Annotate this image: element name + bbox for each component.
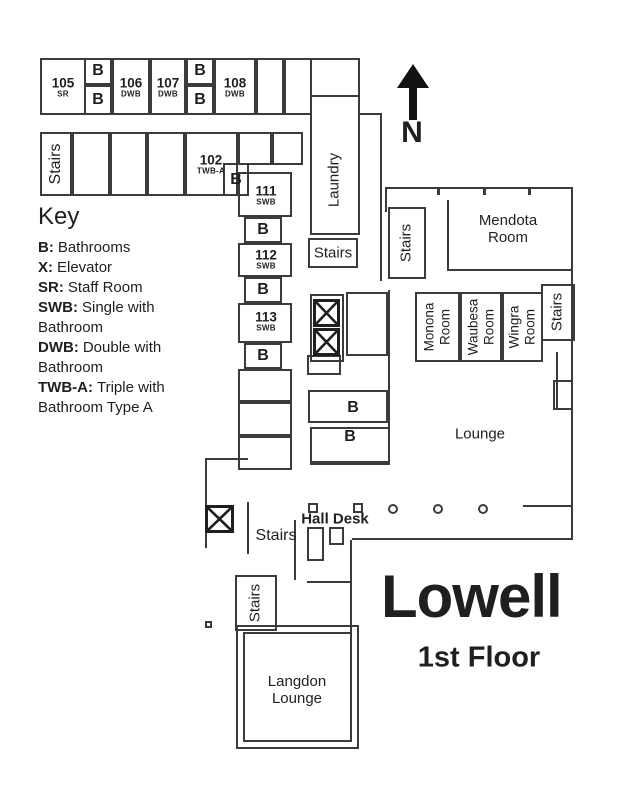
- waubesa-room-label: Waubesa Room: [466, 291, 497, 363]
- key-heading: Key: [38, 203, 79, 231]
- lounge-label: Lounge: [455, 426, 505, 443]
- north-arrow-icon: [396, 64, 430, 120]
- elevator-icon: [313, 299, 340, 327]
- floor-title: 1st Floor: [418, 642, 540, 675]
- wall: [556, 352, 558, 410]
- bathroom-label: B: [194, 62, 206, 80]
- room-outline: [346, 292, 388, 356]
- room-108-label: 108 DWB: [224, 77, 247, 100]
- room-113-label: 113 SWB: [255, 311, 277, 334]
- bathroom-label: B: [92, 91, 104, 109]
- wall: [523, 505, 573, 507]
- floor-plan: 105 SR 106 DWB 107 DWB 108 DWB 102 TWB-A…: [0, 0, 618, 800]
- wall: [360, 113, 380, 115]
- column-marker-square: [205, 621, 212, 628]
- room-outline: [272, 132, 303, 165]
- room-outline: [238, 132, 272, 165]
- wall: [447, 200, 449, 271]
- key-entry: SR:Staff Room: [38, 278, 198, 298]
- room-outline: [307, 355, 341, 375]
- bathroom-label: B: [230, 171, 242, 189]
- key-entry: B:Bathrooms: [38, 238, 198, 258]
- mendota-room-label: Mendota Room: [462, 212, 554, 246]
- room-111-label: 111 SWB: [255, 185, 276, 208]
- wall: [385, 187, 573, 189]
- wall: [358, 60, 360, 95]
- wall: [380, 113, 382, 281]
- wall: [447, 269, 573, 271]
- key-entry: TWB-A:Triple with Bathroom Type A: [38, 378, 198, 418]
- bathroom-label: B: [257, 281, 269, 299]
- wall: [312, 58, 360, 60]
- wall: [385, 187, 387, 212]
- monona-room-label: Monona Room: [422, 291, 453, 363]
- wall: [205, 458, 248, 460]
- wall: [388, 290, 390, 465]
- wall: [310, 463, 388, 465]
- wall: [307, 581, 351, 583]
- room-106-label: 106 DWB: [120, 77, 143, 100]
- room-outline: [238, 436, 292, 470]
- laundry-label: Laundry: [326, 153, 343, 207]
- bathroom-label: B: [92, 62, 104, 80]
- wall: [205, 458, 207, 548]
- elevator-icon: [313, 328, 340, 356]
- room-102-label: 102 TWB-A: [197, 154, 225, 177]
- building-title: Lowell: [381, 566, 562, 628]
- room-outline: [238, 402, 292, 436]
- bathroom-label: B: [257, 221, 269, 239]
- room-outline: [238, 369, 292, 402]
- bathroom-label: B: [257, 347, 269, 365]
- room-outline: [110, 132, 147, 196]
- stairs-label: Stairs: [247, 584, 264, 622]
- key-entry: DWB:Double with Bathroom: [38, 338, 198, 378]
- wall: [571, 187, 573, 540]
- column-marker-circle: [433, 504, 443, 514]
- room-112-label: 112 SWB: [255, 249, 277, 272]
- wall: [247, 502, 249, 554]
- bathroom-label: B: [194, 91, 206, 109]
- room-105-label: 105 SR: [52, 77, 75, 100]
- stairs-label: Stairs: [256, 527, 297, 545]
- room-outline: [256, 58, 284, 115]
- column-marker-circle: [388, 504, 398, 514]
- room-outline: [284, 58, 312, 115]
- wingra-room-label: Wingra Room: [507, 291, 538, 363]
- wall: [350, 540, 352, 632]
- stairs-label: Stairs: [314, 245, 352, 262]
- room-outline: [72, 132, 110, 196]
- stairs-label: Stairs: [47, 144, 65, 185]
- north-label: N: [401, 116, 423, 150]
- room-107-label: 107 DWB: [157, 77, 180, 100]
- elevator-icon: [205, 505, 234, 533]
- bathroom-label: B: [344, 428, 356, 446]
- key-entry: SWB:Single with Bathroom: [38, 298, 198, 338]
- stairs-label: Stairs: [549, 293, 566, 331]
- stairs-label: Stairs: [398, 224, 415, 262]
- window-tick: [528, 189, 531, 195]
- bathroom-label: B: [347, 399, 359, 417]
- window-tick: [483, 189, 486, 195]
- hall-desk-label: Hall Desk: [301, 511, 369, 528]
- room-outline: [147, 132, 185, 196]
- hall-desk-outline: [307, 527, 324, 561]
- key-entry: X:Elevator: [38, 258, 198, 278]
- langdon-lounge-label: Langdon Lounge: [257, 673, 337, 707]
- hall-desk-outline: [329, 527, 344, 545]
- window-tick: [437, 189, 440, 195]
- wall: [352, 538, 573, 540]
- key-list: B:Bathrooms X:Elevator SR:Staff Room SWB…: [38, 238, 198, 418]
- column-marker-circle: [478, 504, 488, 514]
